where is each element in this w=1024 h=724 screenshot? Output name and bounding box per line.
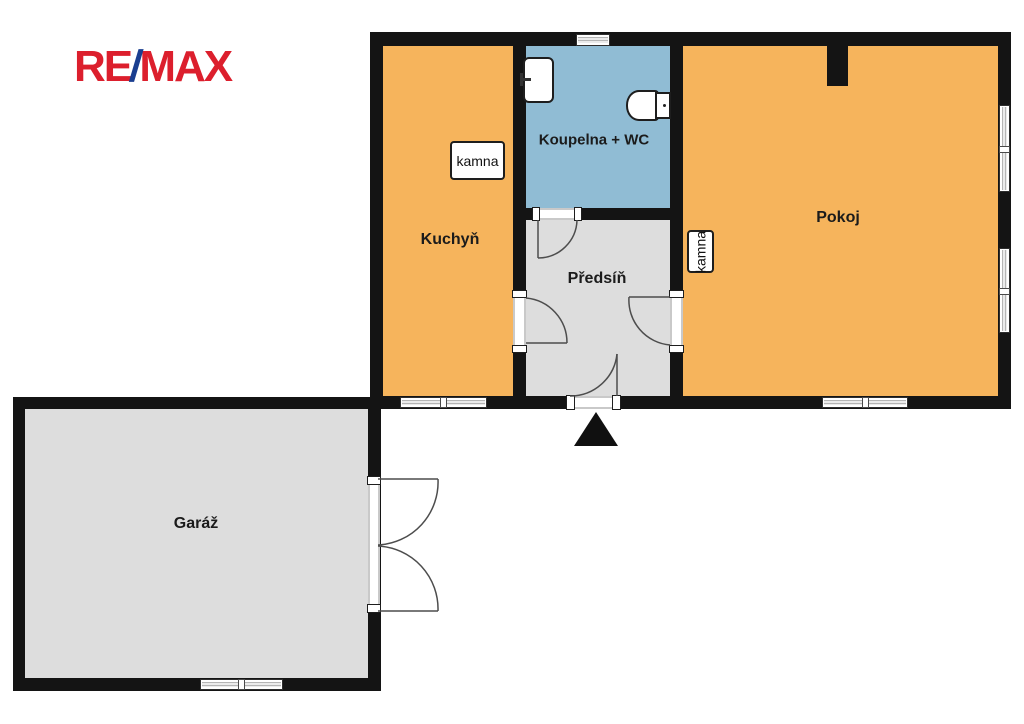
floorplan-canvas: RE/MAX [0, 0, 1024, 724]
livingroom-south-window [822, 397, 908, 408]
garage-window [200, 679, 283, 690]
toilet-button-icon [663, 104, 666, 107]
window-divider [238, 679, 245, 690]
door-jamb [367, 604, 381, 613]
entrance-arrow-icon [574, 412, 618, 446]
window-glazing [578, 37, 608, 43]
room-kitchen [383, 46, 513, 396]
room-garage [25, 409, 368, 678]
door-jamb [574, 207, 582, 221]
door-jamb [669, 290, 684, 298]
window-divider [440, 397, 447, 408]
door-jamb [612, 395, 621, 410]
garage-label: Garáž [174, 515, 218, 533]
door-jamb [532, 207, 540, 221]
door-jamb [566, 395, 575, 410]
window-divider [999, 288, 1010, 295]
window-divider [862, 397, 869, 408]
room-hallway [526, 220, 670, 396]
bathroom-window [576, 34, 610, 46]
bathroom-label: Koupelna + WC [539, 132, 649, 149]
logo-re: RE [74, 42, 131, 91]
kitchen-label: Kuchyň [421, 231, 480, 249]
faucet-icon-spout [523, 78, 531, 81]
livingroom-stove-marker: kamna [687, 230, 714, 273]
livingroom-label: Pokoj [816, 209, 860, 227]
door-jamb [367, 476, 381, 485]
kitchen-stove-marker: kamna [450, 141, 505, 180]
door-jamb [512, 290, 527, 298]
livingroom-door-opening [670, 298, 683, 345]
garage-door-arc-top [378, 479, 438, 545]
chimney [827, 46, 848, 86]
kitchen-door-opening [513, 298, 526, 345]
window-divider [999, 146, 1010, 153]
kitchen-window [400, 397, 487, 408]
remax-logo: RE/MAX [74, 42, 231, 92]
hallway-label: Předsíň [568, 270, 627, 288]
door-jamb [669, 345, 684, 353]
garage-door-opening [368, 477, 380, 612]
logo-max: MAX [139, 42, 231, 91]
door-jamb [512, 345, 527, 353]
livingroom-east-window-2 [999, 248, 1010, 333]
livingroom-east-window-1 [999, 105, 1010, 192]
garage-door-arc-bottom [378, 546, 438, 611]
